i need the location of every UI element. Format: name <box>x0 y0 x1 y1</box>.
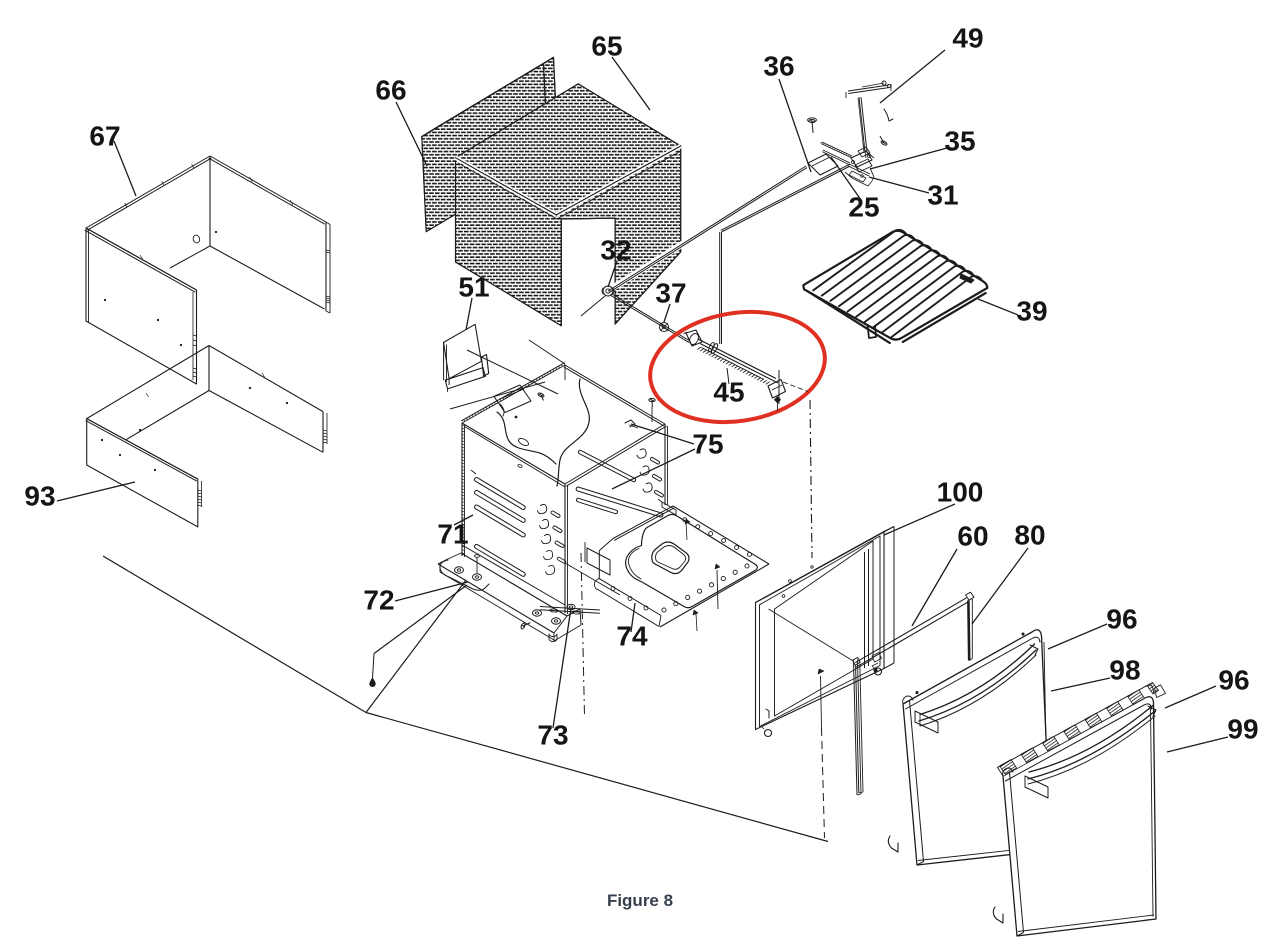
svg-text:73: 73 <box>537 719 568 750</box>
svg-text:99: 99 <box>1227 713 1258 744</box>
svg-text:36: 36 <box>763 50 794 81</box>
svg-text:96: 96 <box>1218 664 1249 695</box>
svg-text:96: 96 <box>1106 603 1137 634</box>
svg-text:75: 75 <box>692 428 723 459</box>
svg-text:72: 72 <box>363 584 394 615</box>
svg-text:25: 25 <box>848 191 879 222</box>
svg-text:35: 35 <box>944 125 975 156</box>
svg-text:39: 39 <box>1016 295 1047 326</box>
svg-text:51: 51 <box>458 271 489 302</box>
svg-text:98: 98 <box>1109 654 1140 685</box>
svg-text:49: 49 <box>952 22 983 53</box>
svg-text:93: 93 <box>24 480 55 511</box>
svg-text:31: 31 <box>927 179 958 210</box>
svg-text:67: 67 <box>89 120 120 151</box>
svg-text:80: 80 <box>1014 519 1045 550</box>
svg-text:Figure 8: Figure 8 <box>607 891 673 910</box>
svg-text:37: 37 <box>655 277 686 308</box>
svg-text:66: 66 <box>375 74 406 105</box>
svg-text:65: 65 <box>591 30 622 61</box>
svg-text:32: 32 <box>600 234 631 265</box>
svg-text:60: 60 <box>957 520 988 551</box>
svg-text:71: 71 <box>437 518 468 549</box>
svg-text:74: 74 <box>616 620 648 651</box>
svg-text:45: 45 <box>713 376 744 407</box>
svg-text:100: 100 <box>937 476 984 507</box>
